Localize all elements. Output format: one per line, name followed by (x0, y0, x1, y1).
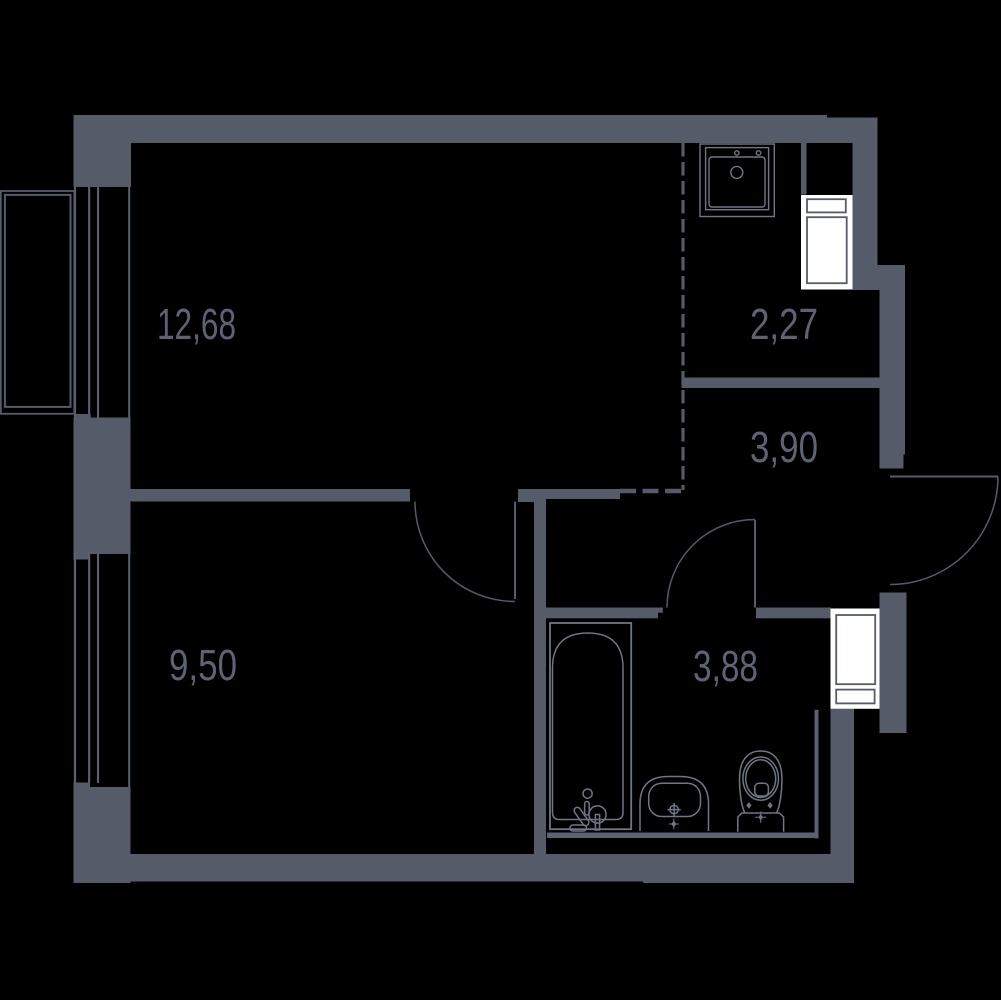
svg-text:3,90: 3,90 (750, 423, 818, 472)
svg-text:3,88: 3,88 (693, 642, 758, 691)
svg-text:12,68: 12,68 (157, 300, 236, 349)
svg-text:9,50: 9,50 (169, 641, 237, 690)
svg-text:2,27: 2,27 (750, 300, 818, 349)
